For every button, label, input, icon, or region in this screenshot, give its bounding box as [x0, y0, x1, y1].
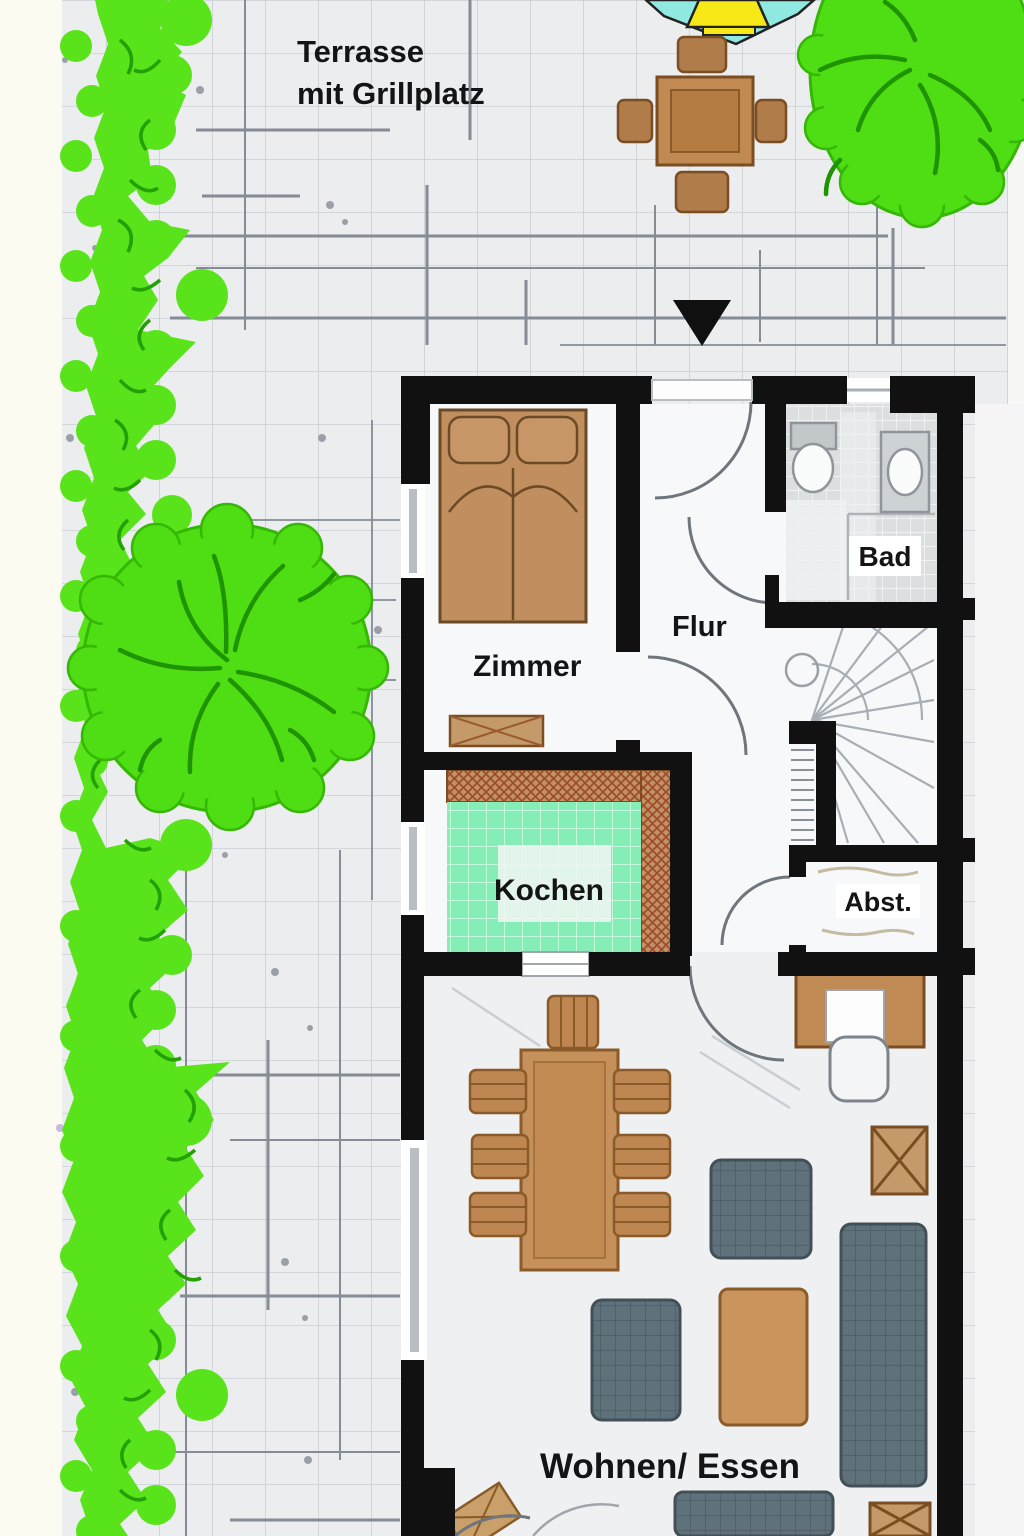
svg-text:Kochen: Kochen	[494, 874, 604, 907]
svg-text:Terrasse: Terrasse	[297, 34, 424, 69]
svg-text:mit Grillplatz: mit Grillplatz	[297, 76, 485, 111]
svg-text:Zimmer: Zimmer	[473, 650, 582, 683]
svg-text:Wohnen/ Essen: Wohnen/ Essen	[540, 1447, 800, 1486]
svg-text:Abst.: Abst.	[844, 887, 912, 917]
svg-text:Bad: Bad	[859, 541, 912, 572]
svg-text:Flur: Flur	[672, 611, 727, 643]
